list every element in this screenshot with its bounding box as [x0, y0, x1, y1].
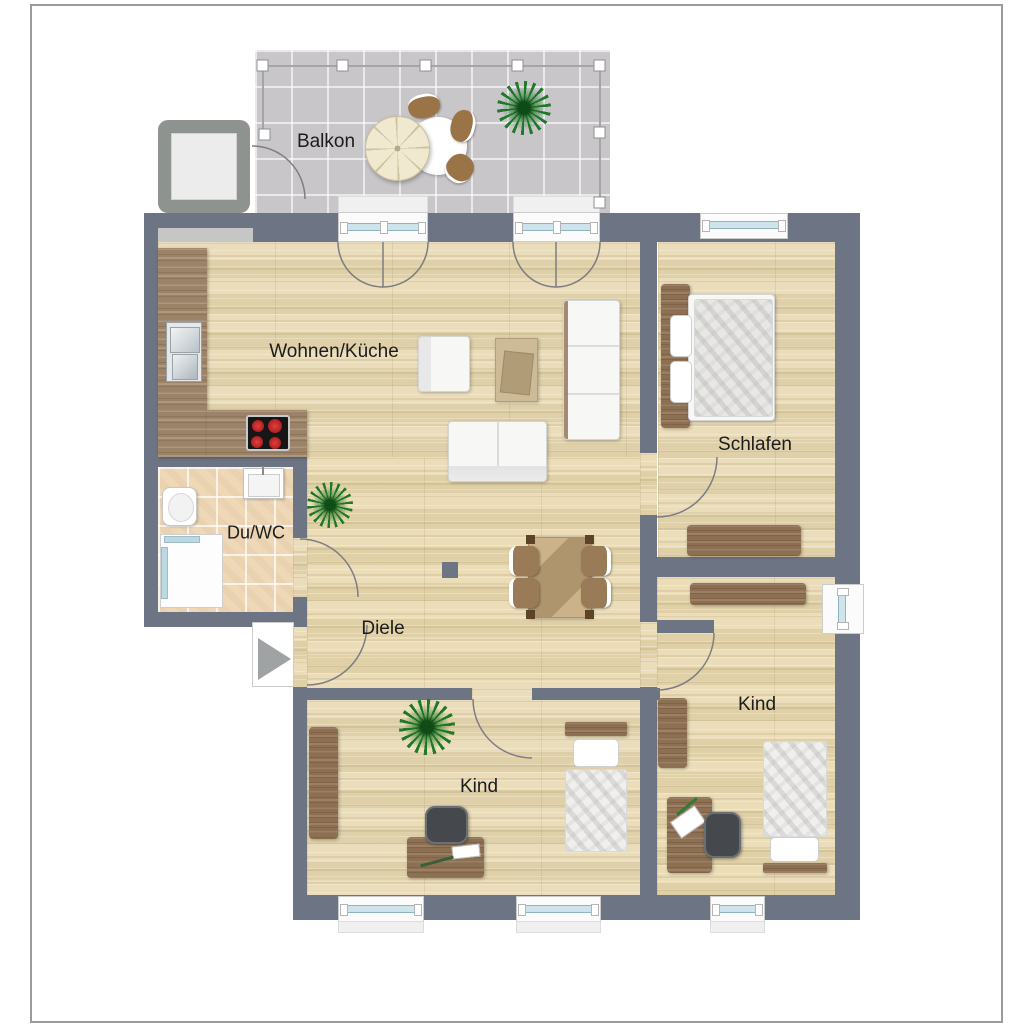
child-right-window-bottom-sill: [710, 921, 765, 933]
bedroom-doorway: [640, 453, 657, 515]
living-plant: [307, 482, 353, 528]
wall-bath-right-a: [293, 457, 307, 538]
child-left-doorway: [472, 688, 532, 700]
wall-bedroom-bottom: [640, 557, 860, 577]
child-right-window-bottom-glass: [714, 905, 761, 913]
dining-table-leg-3: [526, 610, 535, 619]
room-label-hallway: Diele: [361, 618, 404, 640]
wall-left: [144, 242, 158, 627]
child-right-doorway: [640, 622, 657, 687]
wall-child-left-top-a: [293, 688, 472, 700]
child-right-bed-pillow: [770, 837, 819, 862]
bedroom-window-glass: [704, 221, 784, 229]
annex-inner: [171, 133, 237, 200]
shower-glass-top: [164, 536, 200, 543]
dining-chair-3: [581, 546, 611, 576]
balcony-door-2-mullion: [553, 221, 561, 234]
kitchen-tall-cabinet: [158, 228, 253, 242]
child-right-window-east-glass: [838, 590, 846, 628]
child-right-chair: [704, 812, 741, 858]
washbasin-bowl: [248, 474, 280, 497]
entrance-arrow-icon: [258, 638, 291, 680]
coffee-table-tray: [500, 351, 534, 396]
sofa: [563, 300, 620, 440]
dining-chair-2: [509, 578, 539, 608]
bedroom-sideboard: [687, 525, 801, 556]
stove-burner-2: [268, 419, 282, 433]
wall-mid-b: [640, 515, 657, 557]
dining-table-leg-4: [585, 610, 594, 619]
balcony-plant: [497, 81, 551, 135]
dining-chair-1: [509, 546, 539, 576]
kitchen-sink-basin-2: [172, 354, 198, 380]
wall-kids-separator: [640, 687, 657, 895]
bed-pillow-1: [670, 315, 692, 357]
dining-table-leg-2: [585, 535, 594, 544]
child-left-chair: [425, 806, 468, 844]
wall-child-left-west: [293, 687, 307, 895]
child-left-window-1-glass: [342, 905, 420, 913]
child-right-sideboard: [690, 583, 806, 605]
toilet-bowl: [168, 493, 194, 522]
kitchen-sink-basin-1: [170, 327, 200, 353]
balcony-door-1-mullion: [380, 221, 388, 234]
parasol: [365, 116, 430, 181]
child-left-plant: [399, 699, 455, 755]
room-label-bathroom: Du/WC: [227, 523, 285, 544]
door-leaf-child-right: [657, 620, 714, 633]
stove-burner-1: [252, 420, 264, 432]
room-label-child-right: Kind: [738, 694, 776, 716]
child-left-bed-blanket: [565, 769, 627, 852]
dining-chair-4: [581, 578, 611, 608]
child-left-window-2-sill: [516, 921, 601, 933]
floor-plan: Balkon Wohnen/Küche Schlafen Du/WC Diele…: [0, 0, 1030, 1026]
washbasin-faucet: [262, 466, 264, 475]
child-left-window-2-glass: [520, 905, 597, 913]
bed-blanket: [694, 299, 773, 417]
wall-right: [835, 213, 860, 920]
stove-burner-4: [269, 437, 281, 449]
room-label-child-left: Kind: [460, 776, 498, 798]
bathroom-doorway: [293, 538, 307, 597]
wall-mid-c: [640, 577, 657, 622]
wall-mid-a: [640, 242, 657, 453]
bed-pillow-2: [670, 361, 692, 403]
room-label-bedroom: Schlafen: [718, 434, 792, 456]
shower: [160, 534, 223, 608]
shower-glass-side: [161, 547, 168, 599]
entrance-doorway: [293, 623, 307, 687]
room-label-balcony: Balkon: [297, 131, 355, 153]
child-right-bed-blanket: [763, 741, 827, 837]
child-left-bed-pillow: [573, 739, 619, 767]
dining-table-leg-1: [526, 535, 535, 544]
stove-burner-3: [251, 436, 263, 448]
child-right-bed-footboard: [763, 863, 827, 873]
loveseat: [448, 421, 547, 482]
child-left-wardrobe: [309, 727, 338, 839]
child-right-shelf: [658, 698, 687, 768]
armchair: [418, 336, 470, 392]
child-left-bed-headboard: [565, 722, 627, 736]
room-label-living-kitchen: Wohnen/Küche: [269, 341, 399, 363]
wall-bath-top: [158, 457, 307, 467]
column: [442, 562, 458, 578]
balcony-door-2-sill: [513, 196, 600, 213]
child-left-window-1-sill: [338, 921, 424, 933]
wall-bath-right-b: [293, 597, 307, 612]
balcony-door-1-sill: [338, 196, 428, 213]
